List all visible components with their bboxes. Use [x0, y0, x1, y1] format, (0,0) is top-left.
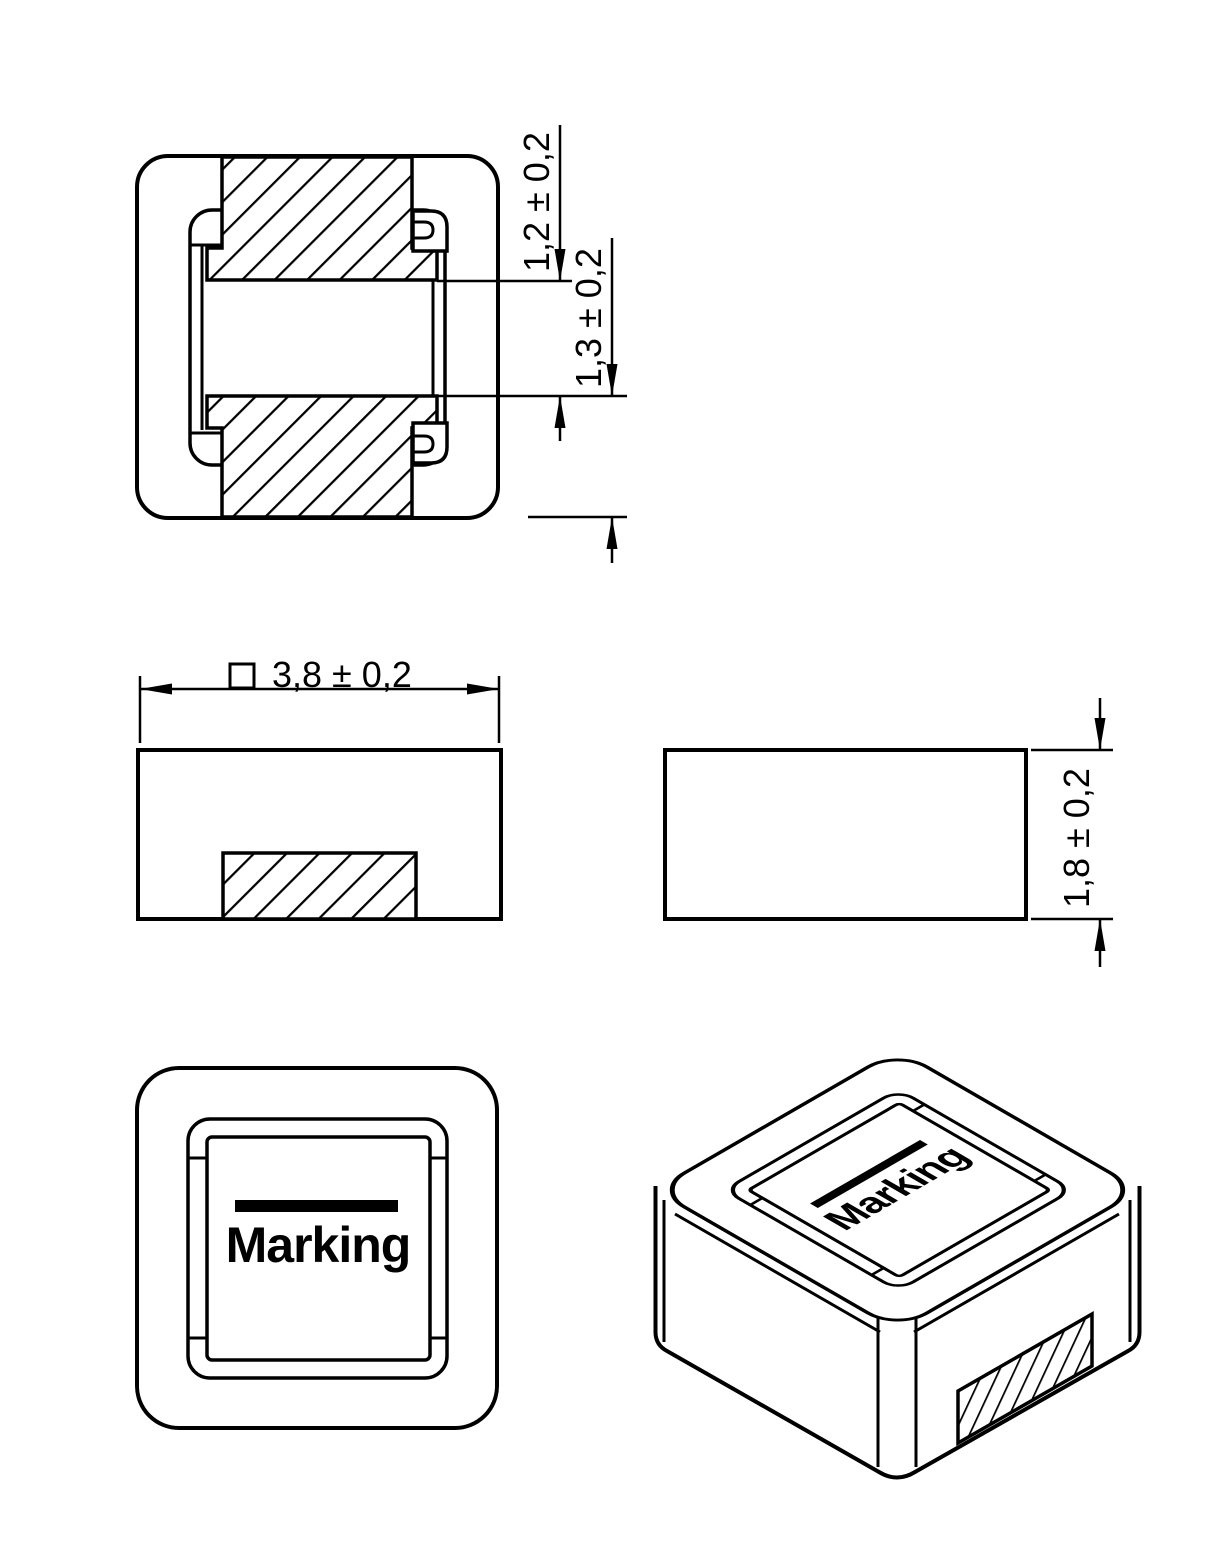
terminal-foot-hatched: [223, 853, 416, 919]
dim-label-body-width: 3,8 ± 0,2: [272, 654, 412, 695]
wire-ear-top-right: [413, 211, 447, 251]
dim-label-body-height: 1,8 ± 0,2: [1056, 768, 1097, 908]
terminal-top-hatched: [207, 157, 437, 280]
body-outline: [665, 750, 1026, 919]
technical-drawing: 1,2 ± 0,2 1,3 ± 0,2 3,8 ± 0,2 1,8 ± 0,2: [0, 0, 1229, 1558]
dim-label-terminal-gap: 1,2 ± 0,2: [516, 132, 557, 272]
wire-ear-bottom-right: [413, 423, 447, 463]
dim-label-terminal-setback: 1,3 ± 0,2: [568, 248, 609, 388]
top-view: Marking: [137, 1068, 497, 1428]
marking-label: Marking: [226, 1217, 411, 1273]
marking-bar: [235, 1200, 398, 1212]
terminal-bottom-hatched: [207, 396, 437, 517]
drawing-canvas: 1,2 ± 0,2 1,3 ± 0,2 3,8 ± 0,2 1,8 ± 0,2: [0, 0, 1229, 1558]
